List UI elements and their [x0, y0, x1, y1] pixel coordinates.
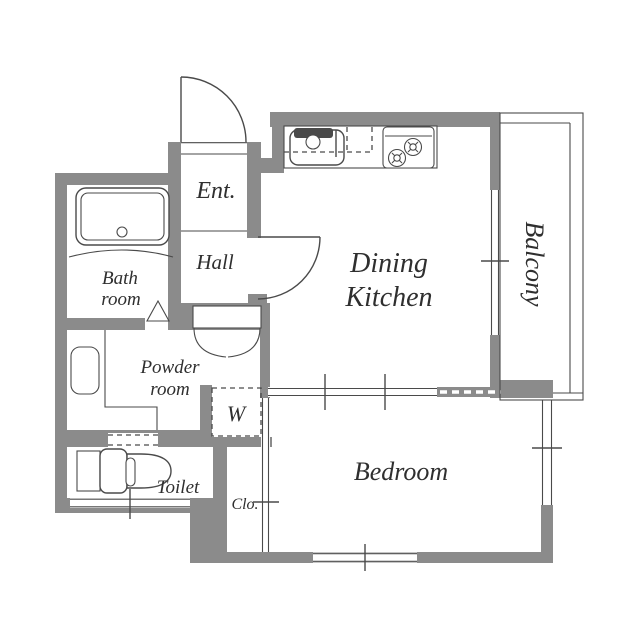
label-entrance: Ent. [195, 178, 235, 204]
kitchen-counter [284, 126, 437, 168]
label-closet: Clo. [231, 496, 258, 513]
wall-exterior-left [55, 173, 67, 513]
kitchen-sink-icon [290, 128, 344, 165]
label-toilet: Toilet [157, 477, 200, 498]
gas-stove-icon [383, 127, 434, 168]
wall-bathroom-bottom [55, 318, 145, 330]
label-bathroom-1: Bath [102, 268, 138, 289]
label-hall: Hall [195, 250, 234, 274]
wall-balcony-side-upper [490, 113, 500, 190]
burner-icon [389, 150, 406, 167]
label-dining-kitchen-1: Dining [349, 248, 428, 279]
floor-plan-page: Ent. Hall Bath room Powder room Toilet W… [0, 0, 640, 640]
label-powder-room-2: room [150, 379, 189, 400]
label-balcony: Balcony [520, 221, 549, 307]
wall-step-southwest [190, 498, 227, 563]
wall-bedroom-right-lower [541, 505, 553, 563]
wall-exterior-top-left [55, 173, 168, 185]
label-bedroom: Bedroom [354, 457, 448, 486]
label-powder-room-1: Powder [139, 357, 200, 378]
burner-icon [405, 139, 422, 156]
floor-plan-drawing: Ent. Hall Bath room Powder room Toilet W… [0, 0, 640, 640]
bathtub-icon [76, 188, 169, 245]
wall-entrance-right [247, 142, 261, 238]
wall-bathroom-right [168, 142, 181, 330]
label-washer: W [227, 401, 247, 426]
vent-above-toilet [108, 433, 158, 447]
wall-toilet-corner [55, 498, 70, 513]
label-bathroom-2: room [101, 289, 140, 310]
wall-exterior-top [270, 112, 500, 127]
label-dining-kitchen-2: Kitchen [344, 282, 432, 313]
